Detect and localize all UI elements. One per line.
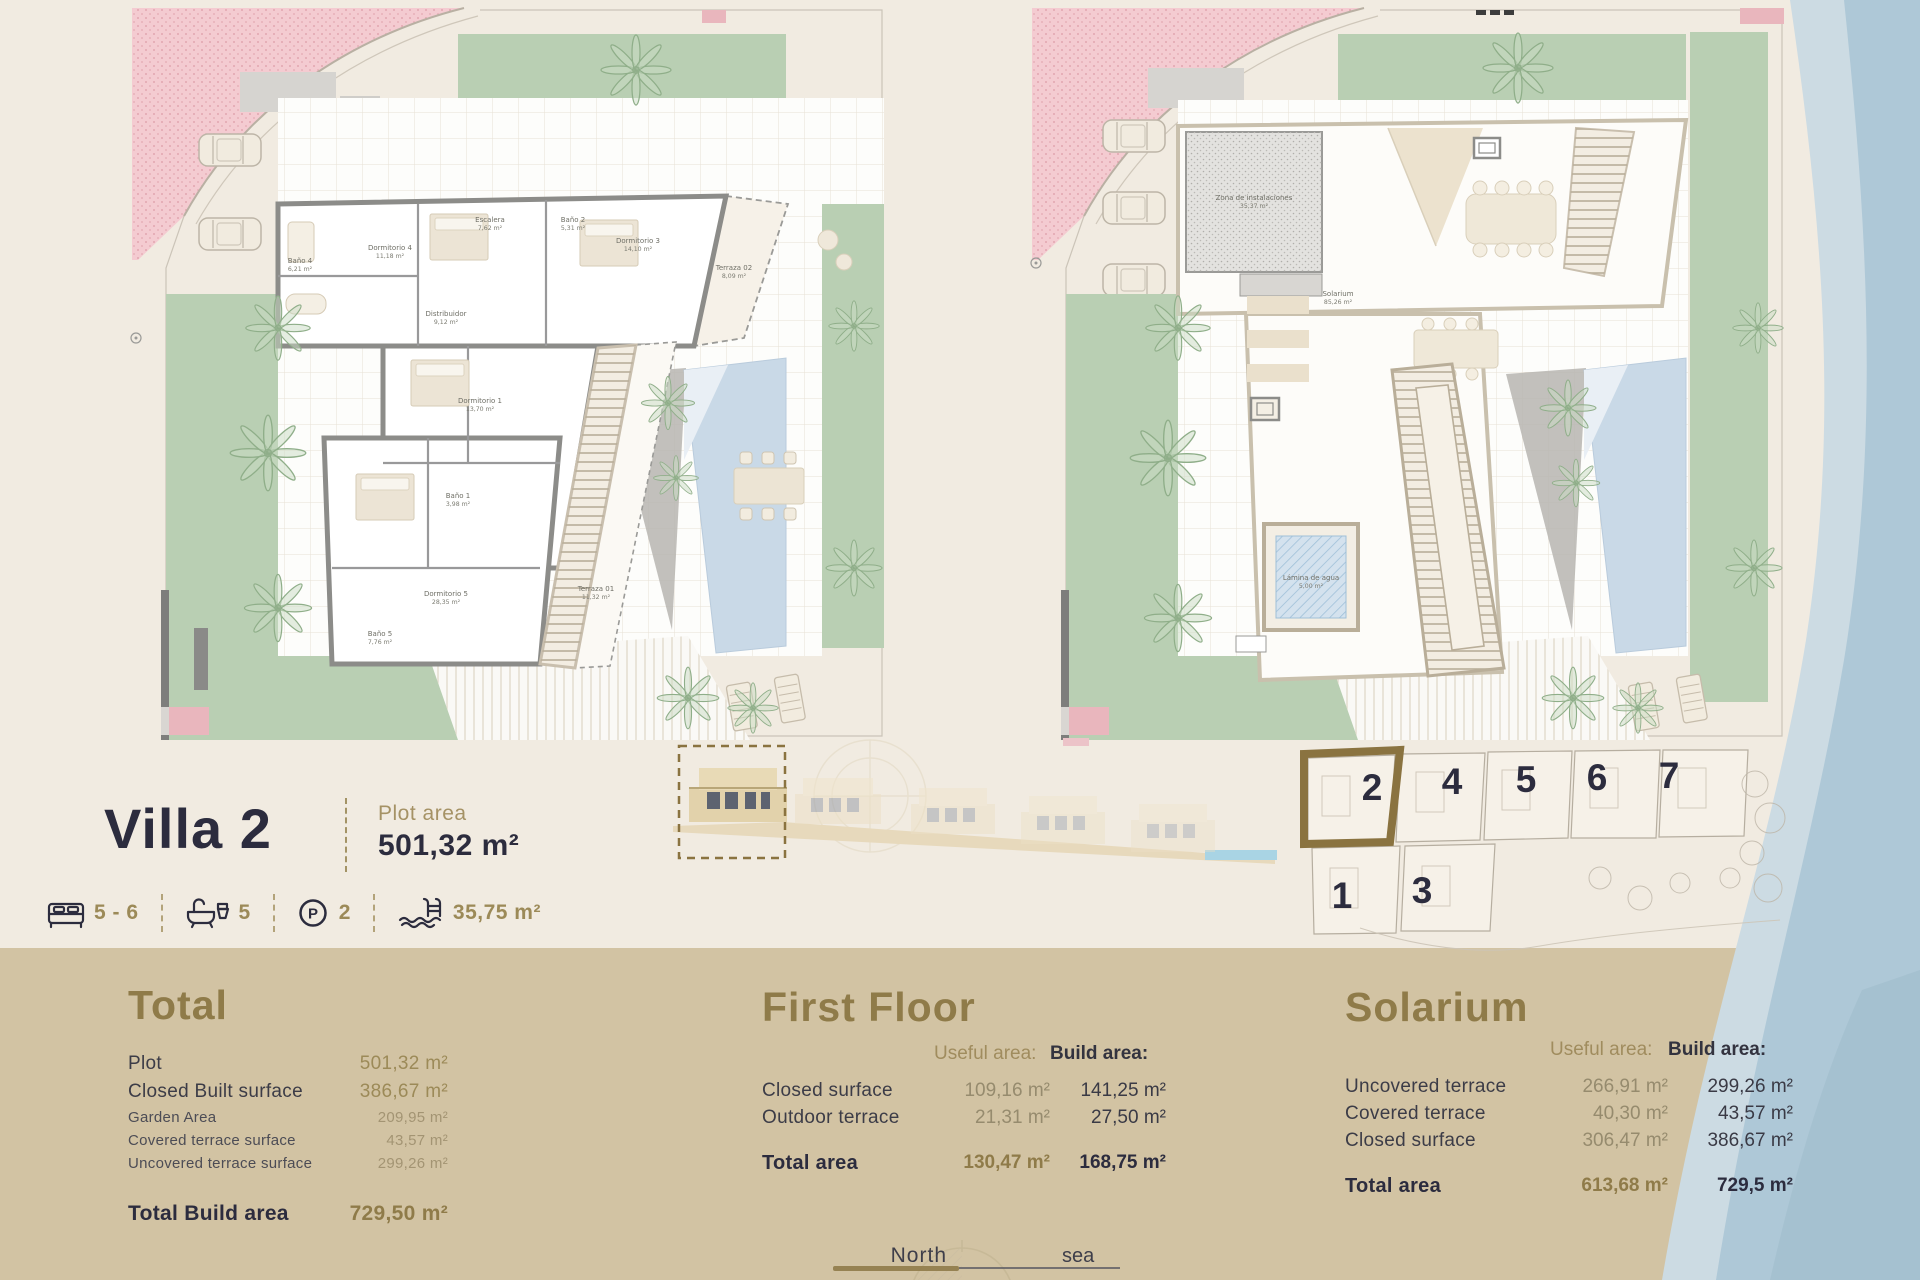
feature-row: 5 - 6 5 P 2 35,75 m² bbox=[46, 894, 541, 932]
room-label: Dormitorio 5 bbox=[424, 590, 468, 598]
site-lot-number: 6 bbox=[1587, 757, 1608, 798]
bedrooms-count: 5 - 6 bbox=[94, 901, 139, 925]
room-label: Baño 4 bbox=[288, 257, 313, 265]
table-row: Uncovered terrace surface299,26 m² bbox=[128, 1155, 448, 1172]
pink-marker bbox=[167, 707, 209, 735]
room-area: 8,09 m² bbox=[722, 273, 747, 280]
room-label: Terraza 02 bbox=[715, 264, 752, 272]
solarium-table: Solarium Useful area: Build area: Uncove… bbox=[1345, 984, 1793, 1198]
parked-car bbox=[1103, 192, 1165, 224]
room-label: Baño 2 bbox=[561, 216, 586, 224]
table-row: Garden Area209,95 m² bbox=[128, 1109, 448, 1126]
room-label: Lámina de agua bbox=[1283, 574, 1339, 582]
compass-sea-label: sea bbox=[1062, 1245, 1095, 1267]
villa-elevation bbox=[795, 778, 881, 824]
room-area: 85,26 m² bbox=[1324, 299, 1353, 306]
villa-elevation bbox=[1021, 796, 1105, 844]
room-area: 7,62 m² bbox=[478, 225, 503, 232]
total-build-area-row: Total Build area729,50 m² bbox=[128, 1202, 448, 1226]
parked-car bbox=[199, 218, 261, 250]
room-label: Baño 5 bbox=[368, 630, 393, 638]
svg-text:P: P bbox=[308, 906, 318, 923]
pool-area-value: 35,75 m² bbox=[453, 901, 541, 925]
room-label: Solarium bbox=[1322, 290, 1353, 298]
feature-pool: 35,75 m² bbox=[397, 896, 541, 930]
table-row: Closed Built surface386,67 m² bbox=[128, 1081, 448, 1103]
table-row: Covered terrace surface43,57 m² bbox=[128, 1132, 448, 1149]
plot-area-value: 501,32 m² bbox=[378, 829, 519, 863]
useful-area-header: Useful area: bbox=[1550, 1039, 1668, 1071]
build-area-header: Build area: bbox=[1668, 1039, 1793, 1071]
parking-icon: P bbox=[297, 897, 331, 929]
feature-bedrooms: 5 - 6 bbox=[46, 897, 139, 929]
first-floor-table-title: First Floor bbox=[762, 984, 1166, 1031]
header-divider bbox=[345, 798, 347, 872]
total-table-title: Total bbox=[128, 982, 448, 1029]
plot-area-label: Plot area bbox=[378, 802, 519, 826]
room-label: Dormitorio 1 bbox=[458, 397, 502, 405]
room-label: Baño 1 bbox=[446, 492, 471, 500]
feature-divider bbox=[161, 894, 163, 932]
villa-elevation bbox=[1131, 804, 1215, 852]
room-area: 35,37 m² bbox=[1240, 203, 1269, 210]
site-lot-number: 5 bbox=[1516, 759, 1537, 800]
room-label: Dormitorio 3 bbox=[616, 237, 660, 245]
floorplan-first-floor: Baño 46,21 m²Dormitorio 411,18 m²Escaler… bbox=[131, 8, 884, 740]
bed-icon bbox=[46, 897, 86, 929]
parked-car bbox=[1103, 264, 1165, 296]
room-area: 5,31 m² bbox=[561, 225, 586, 232]
room-label: Dormitorio 4 bbox=[368, 244, 413, 252]
villa-elevation bbox=[911, 788, 995, 834]
room-area: 7,76 m² bbox=[368, 639, 393, 646]
room-area: 11,18 m² bbox=[376, 253, 405, 260]
site-lot-number: 1 bbox=[1332, 875, 1353, 916]
feature-bathrooms: 5 bbox=[185, 897, 251, 929]
brochure-page: Baño 46,21 m²Dormitorio 411,18 m²Escaler… bbox=[0, 0, 1920, 1280]
room-area: 28,35 m² bbox=[432, 599, 461, 606]
room-label: Distribuidor bbox=[426, 310, 467, 318]
site-lot-number: 4 bbox=[1442, 761, 1463, 802]
skylight bbox=[1474, 138, 1500, 158]
room-area: 6,21 m² bbox=[288, 266, 313, 273]
parking-count: 2 bbox=[339, 901, 351, 925]
parked-car bbox=[1103, 120, 1165, 152]
feature-divider bbox=[273, 894, 275, 932]
bath-icon bbox=[185, 897, 231, 929]
table-row: Plot501,32 m² bbox=[128, 1053, 448, 1075]
useful-area-header: Useful area: bbox=[934, 1043, 1050, 1075]
compass-north-label: North bbox=[891, 1244, 947, 1267]
pool-icon bbox=[397, 896, 445, 930]
bathrooms-count: 5 bbox=[239, 901, 251, 925]
villa-elevation-highlighted bbox=[689, 768, 787, 822]
bed bbox=[356, 474, 414, 520]
total-table: Total Plot501,32 m² Closed Built surface… bbox=[128, 982, 448, 1226]
water-line bbox=[1205, 850, 1277, 860]
feature-divider bbox=[373, 894, 375, 932]
sun-mat bbox=[1247, 364, 1309, 382]
sun-mat bbox=[1247, 296, 1309, 314]
room-area: 11,32 m² bbox=[582, 594, 611, 601]
room-label: Zona de instalaciones bbox=[1216, 194, 1293, 202]
room-label: Terraza 01 bbox=[577, 585, 614, 593]
room-area: 3,98 m² bbox=[446, 501, 471, 508]
parked-car bbox=[199, 134, 261, 166]
page-title: Villa 2 bbox=[104, 796, 272, 861]
solarium-table-title: Solarium bbox=[1345, 984, 1793, 1031]
site-lot-number: 2 bbox=[1362, 767, 1383, 808]
fire-pit bbox=[1251, 398, 1279, 420]
room-area: 13,70 m² bbox=[466, 406, 495, 413]
build-area-header: Build area: bbox=[1050, 1043, 1166, 1075]
outdoor-kitchen bbox=[1240, 274, 1322, 296]
pink-marker bbox=[1067, 707, 1109, 735]
site-lot-number: 3 bbox=[1412, 870, 1433, 911]
room-area: 5,00 m² bbox=[1299, 583, 1324, 590]
room-area: 14,10 m² bbox=[624, 246, 653, 253]
first-floor-table: First Floor Useful area: Build area: Clo… bbox=[762, 984, 1166, 1175]
sun-mat bbox=[1247, 330, 1309, 348]
room-label: Escalera bbox=[475, 216, 505, 224]
floorplan-solarium: Zona de instalaciones35,37 m²Solarium85,… bbox=[1031, 8, 1784, 740]
plot-area-block: Plot area 501,32 m² bbox=[378, 802, 519, 863]
outdoor-dining bbox=[734, 452, 804, 520]
room-area: 9,12 m² bbox=[434, 319, 459, 326]
feature-parking: P 2 bbox=[297, 897, 351, 929]
site-lot-number: 7 bbox=[1659, 755, 1680, 796]
